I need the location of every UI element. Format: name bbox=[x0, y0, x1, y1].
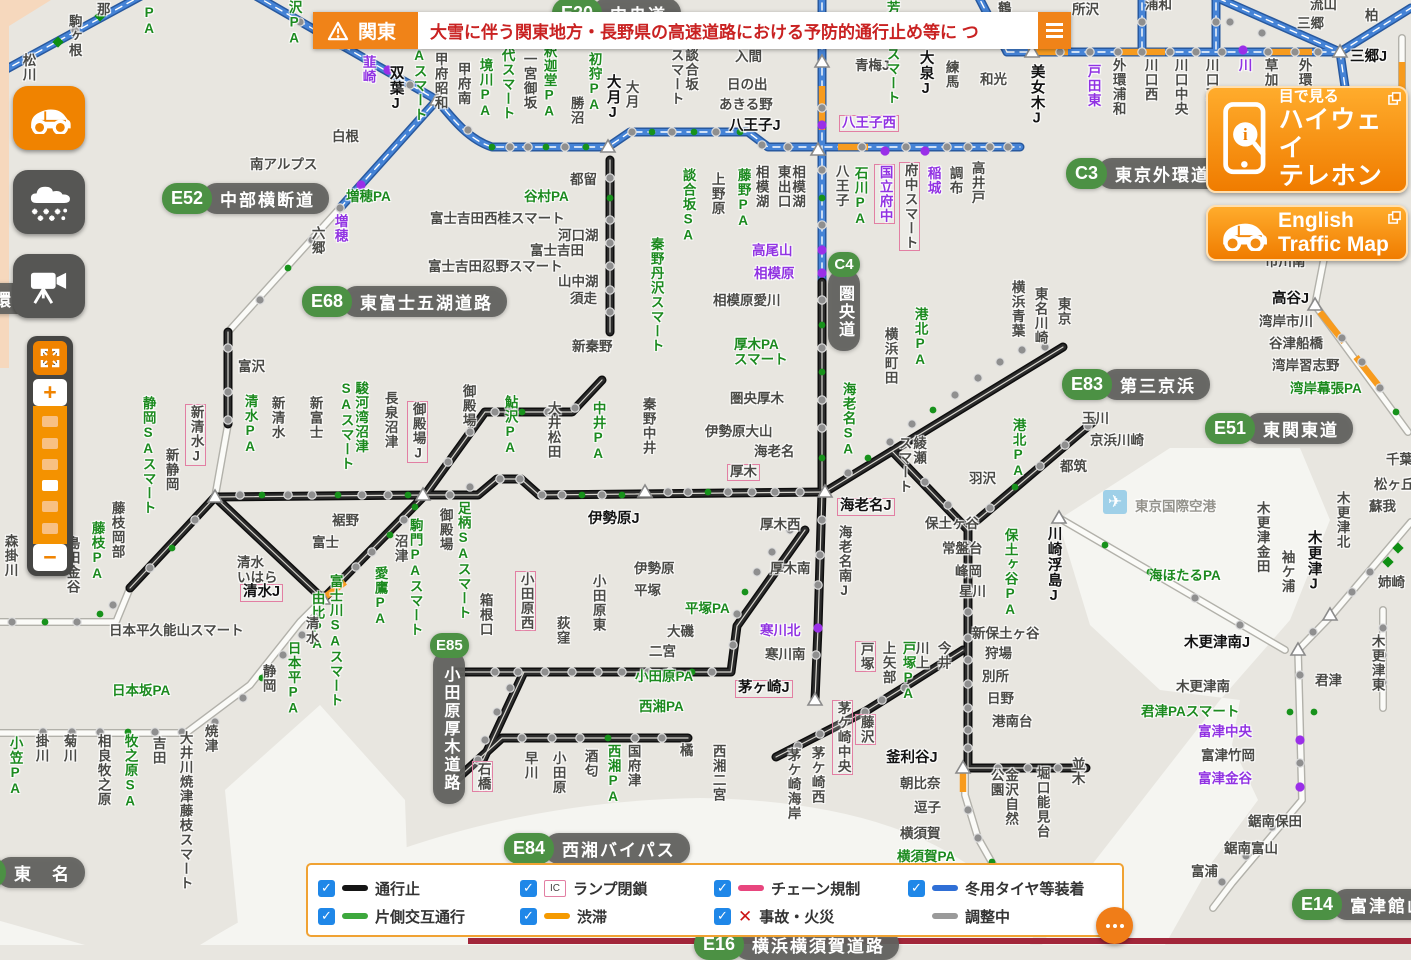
legend-checkbox[interactable]: ✓ bbox=[318, 880, 335, 897]
expand-arrows-icon bbox=[38, 346, 62, 370]
legend-checkbox[interactable]: ✓ bbox=[520, 880, 537, 897]
region-boundary bbox=[0, 0, 9, 368]
zoom-level-tick[interactable] bbox=[42, 480, 58, 491]
legend-symbol-blue bbox=[932, 885, 958, 891]
legend-item: ✓チェーン規制 bbox=[714, 878, 908, 899]
legend-label: 通行止 bbox=[375, 878, 420, 899]
legend-label: 事故・火災 bbox=[759, 906, 834, 927]
weather-layer-button[interactable] bbox=[13, 170, 85, 234]
legend-item: 調整中 bbox=[908, 906, 1010, 927]
legend-panel: ✓通行止✓ICランプ閉鎖✓チェーン規制✓冬用タイヤ等装着 ✓片側交互通行✓渋滞✓… bbox=[306, 863, 1124, 937]
legend-item: ✓渋滞 bbox=[520, 906, 714, 927]
zoom-in-button[interactable]: + bbox=[33, 379, 67, 406]
car-icon bbox=[26, 102, 72, 134]
hamburger-icon bbox=[1046, 23, 1063, 26]
warning-icon bbox=[327, 21, 349, 41]
legend-item: ✓冬用タイヤ等装着 bbox=[908, 878, 1085, 899]
fullscreen-button[interactable] bbox=[33, 341, 67, 375]
svg-text:i: i bbox=[1243, 125, 1248, 144]
camera-icon bbox=[27, 267, 71, 305]
legend-item: ✓片側交互通行 bbox=[318, 906, 520, 927]
legend-label: 冬用タイヤ等装着 bbox=[965, 878, 1085, 899]
zoom-slider[interactable] bbox=[33, 406, 67, 544]
external-link-icon bbox=[1388, 92, 1401, 105]
english-text: English Traffic Map bbox=[1278, 209, 1389, 256]
menu-button[interactable] bbox=[1038, 12, 1071, 49]
more-options-button[interactable] bbox=[1096, 907, 1133, 944]
telehon-text: 目で見る ハイウェイ テレホン bbox=[1279, 89, 1400, 190]
legend-checkbox[interactable]: ✓ bbox=[318, 908, 335, 925]
traffic-mode-button[interactable] bbox=[13, 86, 85, 150]
legend-checkbox[interactable]: ✓ bbox=[714, 908, 731, 925]
region-boundary bbox=[9, 0, 51, 26]
alert-region: 関東 bbox=[313, 12, 418, 49]
zoom-level-tick[interactable] bbox=[42, 501, 58, 512]
legend-label: チェーン規制 bbox=[771, 878, 860, 899]
highway-telephone-button[interactable]: i 目で見る ハイウェイ テレホン bbox=[1206, 86, 1408, 193]
zoom-level-tick[interactable] bbox=[42, 459, 58, 470]
legend-checkbox[interactable]: ✓ bbox=[714, 880, 731, 897]
legend-symbol-gray bbox=[932, 913, 958, 919]
alert-banner[interactable]: 関東 大雪に伴う関東地方・長野県の高速道路における予防的通行止め等に つ bbox=[313, 12, 1071, 49]
zoom-control: + − bbox=[27, 336, 73, 576]
airport-icon: ✈ bbox=[1103, 490, 1127, 514]
legend-item: ✓✕事故・火災 bbox=[714, 906, 908, 927]
legend-checkbox[interactable]: ✓ bbox=[908, 880, 925, 897]
zoom-out-button[interactable]: − bbox=[33, 544, 67, 571]
zoom-level-tick[interactable] bbox=[42, 416, 58, 427]
legend-label: 片側交互通行 bbox=[375, 906, 465, 927]
road-network bbox=[0, 0, 1411, 945]
legend-item: ✓ICランプ閉鎖 bbox=[520, 878, 714, 899]
phone-info-icon: i bbox=[1220, 98, 1269, 182]
region-boundary-line bbox=[468, 938, 1411, 944]
legend-symbol-pink bbox=[738, 885, 764, 891]
weather-icon bbox=[27, 182, 71, 222]
zoom-level-tick[interactable] bbox=[42, 523, 58, 534]
legend-checkbox[interactable]: ✓ bbox=[520, 908, 537, 925]
legend-label: 渋滞 bbox=[577, 906, 607, 927]
alert-message[interactable]: 大雪に伴う関東地方・長野県の高速道路における予防的通行止め等に つ bbox=[418, 12, 1038, 49]
legend-label: ランプ閉鎖 bbox=[573, 878, 648, 899]
legend-symbol-ic: IC bbox=[544, 880, 566, 897]
external-link-icon bbox=[1388, 211, 1401, 224]
live-camera-button[interactable] bbox=[13, 254, 85, 318]
legend-item: ✓通行止 bbox=[318, 878, 520, 899]
legend-symbol-green bbox=[342, 913, 368, 919]
car-icon bbox=[1218, 215, 1268, 251]
legend-symbol-black bbox=[342, 885, 368, 891]
zoom-level-tick[interactable] bbox=[42, 438, 58, 449]
legend-symbol-orange bbox=[544, 913, 570, 919]
legend-label: 調整中 bbox=[965, 906, 1010, 927]
english-map-button[interactable]: English Traffic Map bbox=[1206, 205, 1408, 261]
legend-symbol-x: ✕ bbox=[738, 908, 752, 925]
alert-region-label: 関東 bbox=[358, 17, 396, 44]
